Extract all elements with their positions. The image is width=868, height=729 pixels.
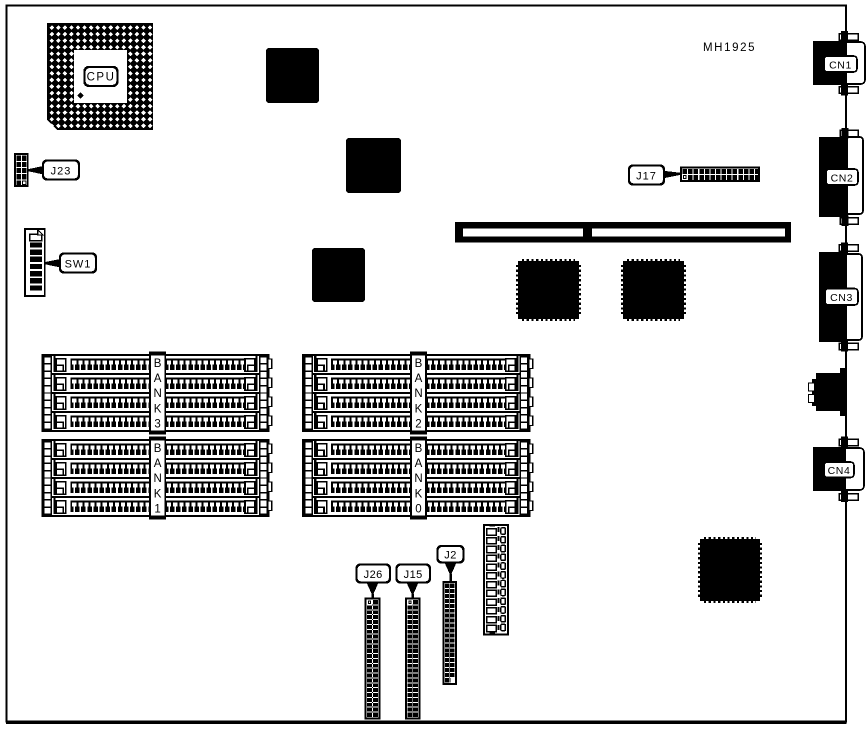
svg-text:K: K (415, 403, 423, 415)
svg-text:A: A (415, 373, 423, 385)
svg-text:J2: J2 (444, 550, 457, 562)
svg-text:J17: J17 (636, 170, 657, 182)
svg-text:2: 2 (415, 419, 421, 431)
svg-text:CN2: CN2 (831, 172, 854, 184)
svg-text:CPU: CPU (87, 72, 116, 84)
svg-text:B: B (415, 358, 423, 370)
svg-text:3: 3 (154, 419, 160, 431)
svg-text:J26: J26 (364, 569, 383, 581)
svg-text:N: N (414, 388, 422, 400)
svg-text:K: K (154, 488, 162, 500)
svg-text:A: A (154, 458, 162, 470)
svg-text:N: N (414, 473, 422, 485)
svg-text:J23: J23 (51, 165, 72, 177)
svg-text:CN1: CN1 (829, 59, 852, 71)
svg-text:B: B (154, 443, 162, 455)
svg-text:A: A (154, 373, 162, 385)
svg-text:J15: J15 (404, 569, 423, 581)
svg-text:B: B (154, 358, 162, 370)
svg-text:0: 0 (415, 504, 421, 516)
svg-text:A: A (415, 458, 423, 470)
svg-text:N: N (153, 473, 161, 485)
svg-text:N: N (153, 388, 161, 400)
svg-text:B: B (415, 443, 423, 455)
svg-text:1: 1 (154, 504, 160, 516)
svg-text:K: K (415, 488, 423, 500)
svg-text:K: K (154, 403, 162, 415)
svg-text:SW1: SW1 (65, 258, 92, 270)
svg-text:CN4: CN4 (828, 465, 851, 477)
svg-text:MH1925: MH1925 (703, 42, 756, 54)
svg-text:CN3: CN3 (830, 292, 853, 304)
